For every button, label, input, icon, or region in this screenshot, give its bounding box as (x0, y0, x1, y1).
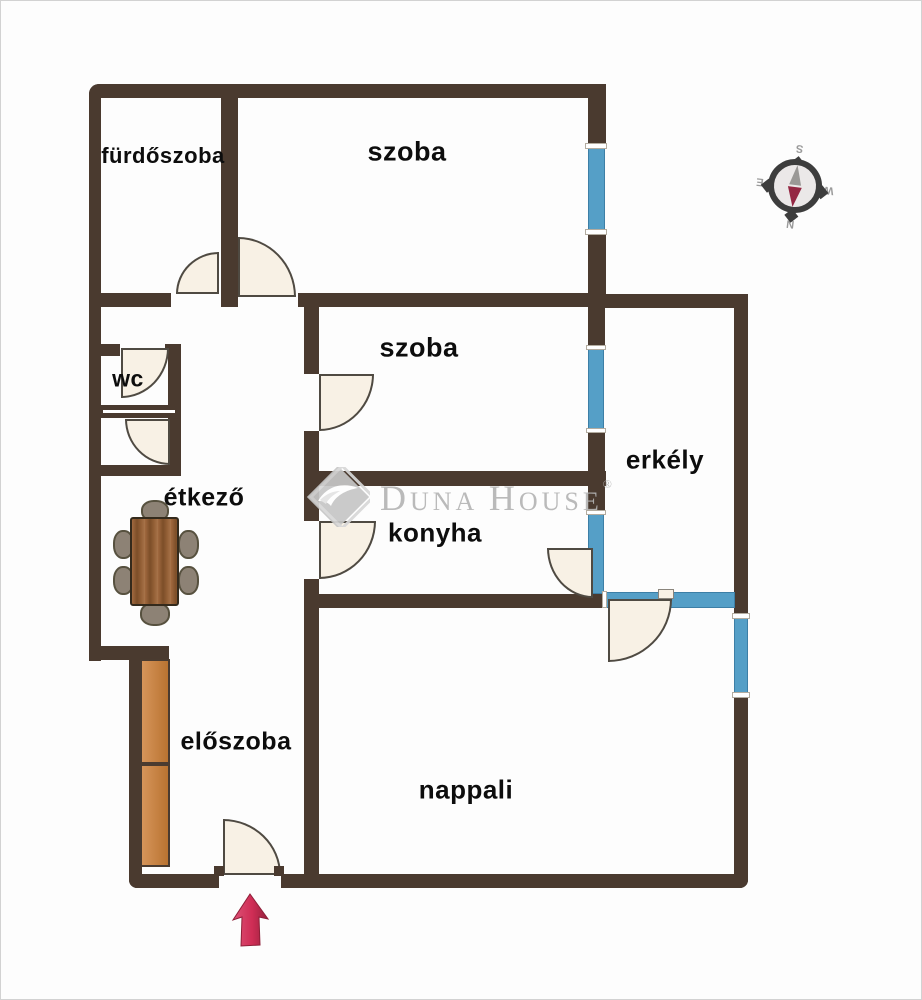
wall-outer-bottom-right (281, 874, 748, 888)
window-szoba1 (588, 148, 605, 230)
wardrobe-upper (140, 659, 170, 764)
door-szoba2 (319, 374, 374, 431)
floorplan-image: fürdőszoba szoba wc szoba étkező konyha … (0, 0, 922, 1000)
compass-icon: N E S W (751, 138, 839, 235)
room-label-erkely: erkély (626, 445, 704, 476)
room-label-eloszoba: előszoba (181, 728, 292, 757)
window-cap (732, 692, 750, 698)
wall-door-pillar (221, 293, 238, 307)
wall-szoba1-right-upper (588, 98, 606, 148)
duna-house-wordmark: DUNA HOUSE® (380, 478, 612, 516)
room-label-etkezo: étkező (164, 484, 245, 513)
wall-main-horizontal-right (298, 293, 606, 307)
window-nappali-right (734, 618, 748, 693)
balcony-door-latch (658, 589, 674, 599)
window-cap (602, 591, 607, 608)
door-entrance (223, 819, 281, 875)
dining-chair (178, 566, 199, 595)
wall-erkely-right (734, 294, 748, 592)
wall-outer-bottom-left (129, 874, 219, 888)
wall-erkely-top (601, 294, 748, 308)
wall-furdoszoba-szoba-divider (221, 98, 238, 294)
wall-wc-top-left-stub (101, 344, 120, 356)
wall-konyha-nappali (304, 594, 609, 608)
window-cap (585, 143, 607, 149)
wall-outer-left-upper (89, 84, 101, 661)
wall-nappali-right-lower (734, 694, 748, 888)
compass-needle (765, 156, 825, 216)
door-furdoszoba (176, 252, 219, 294)
wc-threshold-line (103, 410, 175, 413)
compass-south-label: S (795, 142, 804, 155)
duna-house-watermark: DUNA HOUSE® (306, 467, 612, 527)
door-pantry (125, 419, 170, 465)
entrance-door-foot (274, 866, 284, 876)
window-szoba2-erkely (588, 349, 604, 429)
wall-main-horizontal-left (89, 293, 171, 307)
window-cap (732, 613, 750, 619)
room-label-szoba-kozepso: szoba (379, 333, 458, 364)
room-label-wc: wc (112, 366, 144, 393)
window-cap (585, 229, 607, 235)
wall-pantry-bottom (101, 465, 181, 476)
window-cap (586, 345, 606, 350)
door-erkely-nappali (608, 599, 672, 662)
dining-chair (178, 530, 199, 559)
entrance-arrow-icon (229, 893, 271, 949)
wall-eloszoba-nappali (304, 608, 319, 874)
duna-house-logo-icon (306, 467, 370, 527)
dining-table (130, 517, 179, 606)
room-label-furdoszoba: fürdőszoba (101, 143, 225, 169)
wall-hall-vertical-1 (304, 294, 319, 374)
room-label-szoba-felso: szoba (367, 137, 446, 168)
wall-hall-vertical-3 (304, 579, 319, 595)
wardrobe-lower (140, 764, 170, 867)
wall-outer-top (89, 84, 606, 98)
window-cap (586, 428, 606, 433)
wall-erkely-left-upper (588, 294, 605, 349)
door-konyha-erkely (547, 548, 593, 598)
door-szoba1 (238, 237, 296, 297)
room-label-nappali: nappali (419, 775, 514, 806)
wall-szoba1-right-lower (588, 231, 606, 293)
door-konyha (319, 521, 376, 579)
entrance-door-foot (214, 866, 224, 876)
